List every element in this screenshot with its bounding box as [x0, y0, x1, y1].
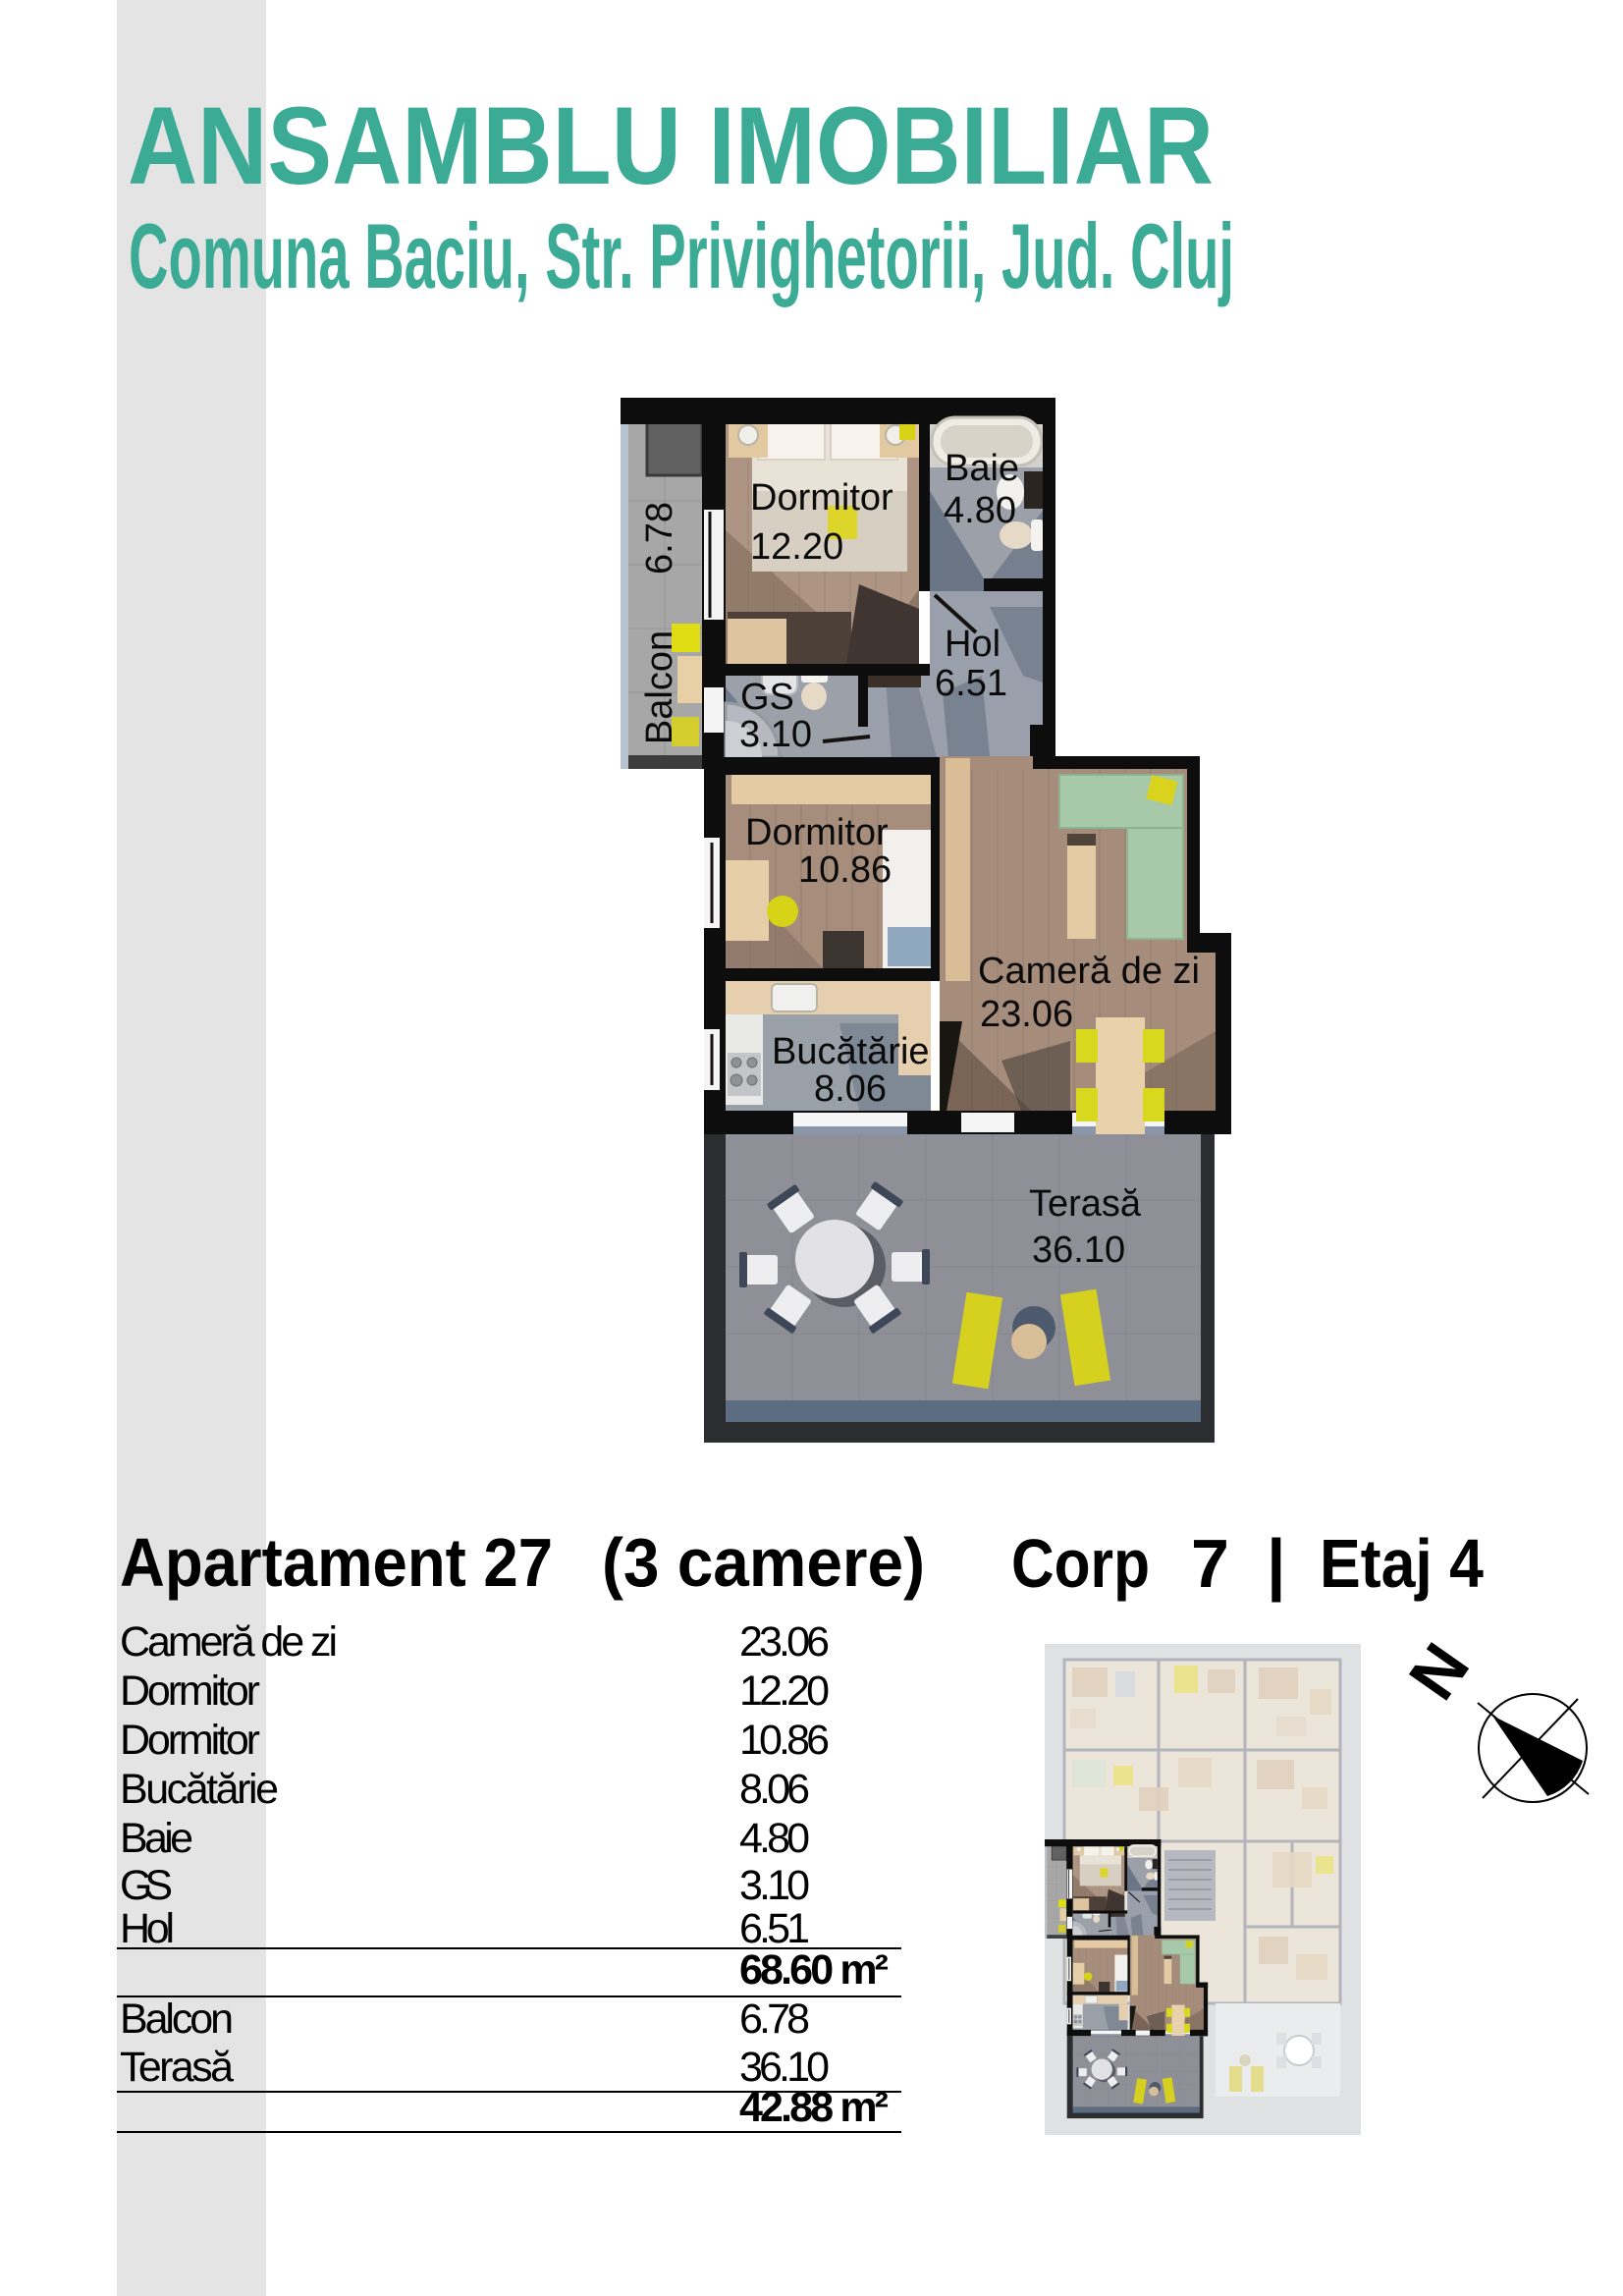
svg-text:ANSAMBLU IMOBILIAR: ANSAMBLU IMOBILIAR [128, 84, 1214, 207]
svg-text:8.06: 8.06 [739, 1766, 810, 1813]
svg-text:10.86: 10.86 [798, 849, 892, 891]
svg-text:7: 7 [1191, 1525, 1229, 1602]
svg-text:Balcon: Balcon [120, 1995, 234, 2043]
svg-text:Bucătărie: Bucătărie [120, 1766, 279, 1813]
svg-text:6.78: 6.78 [639, 502, 680, 574]
svg-text:Bucătărie: Bucătărie [772, 1031, 930, 1072]
svg-text:Hol: Hol [120, 1905, 175, 1952]
svg-text:(3 camere): (3 camere) [602, 1524, 925, 1601]
svg-text:Dormitor: Dormitor [745, 812, 889, 853]
svg-text:Cameră de zi: Cameră de zi [978, 951, 1200, 992]
svg-text:Baie: Baie [120, 1815, 193, 1862]
svg-text:3.10: 3.10 [739, 1862, 810, 1909]
svg-text:Terasă: Terasă [120, 2044, 234, 2091]
svg-text:GS: GS [120, 1862, 173, 1909]
svg-text:3.10: 3.10 [739, 714, 812, 755]
svg-text:Comuna Baciu, Str. Privighetor: Comuna Baciu, Str. Privighetorii, Jud. C… [129, 204, 1234, 307]
svg-text:N: N [1395, 1630, 1484, 1713]
svg-text:12.20: 12.20 [750, 526, 843, 568]
svg-text:6.78: 6.78 [739, 1995, 810, 2043]
svg-text:8.06: 8.06 [814, 1068, 887, 1110]
svg-text:|: | [1267, 1525, 1286, 1603]
svg-text:6.51: 6.51 [935, 663, 1007, 704]
svg-text:4.80: 4.80 [739, 1815, 810, 1862]
svg-text:12.20: 12.20 [739, 1667, 830, 1715]
svg-text:36.10: 36.10 [1032, 1230, 1125, 1271]
svg-text:Cameră de zi: Cameră de zi [120, 1618, 338, 1666]
svg-text:Hol: Hol [945, 624, 1001, 665]
svg-text:Balcon: Balcon [639, 630, 680, 744]
svg-text:Baie: Baie [945, 448, 1019, 489]
svg-text:Dormitor: Dormitor [120, 1667, 260, 1715]
svg-text:6.51: 6.51 [739, 1905, 810, 1952]
svg-text:68.60 m²: 68.60 m² [739, 1946, 889, 1994]
svg-text:GS: GS [740, 677, 794, 718]
svg-text:Corp: Corp [1011, 1525, 1150, 1602]
svg-text:Terasă: Terasă [1029, 1183, 1142, 1225]
svg-text:23.06: 23.06 [980, 994, 1073, 1035]
svg-text:Dormitor: Dormitor [750, 477, 893, 519]
svg-text:Dormitor: Dormitor [120, 1717, 260, 1764]
svg-text:4.80: 4.80 [944, 490, 1016, 531]
svg-text:Etaj 4: Etaj 4 [1320, 1525, 1484, 1602]
svg-text:10.86: 10.86 [739, 1717, 830, 1764]
svg-text:23.06: 23.06 [739, 1618, 830, 1666]
svg-text:Apartament 27: Apartament 27 [120, 1524, 553, 1601]
